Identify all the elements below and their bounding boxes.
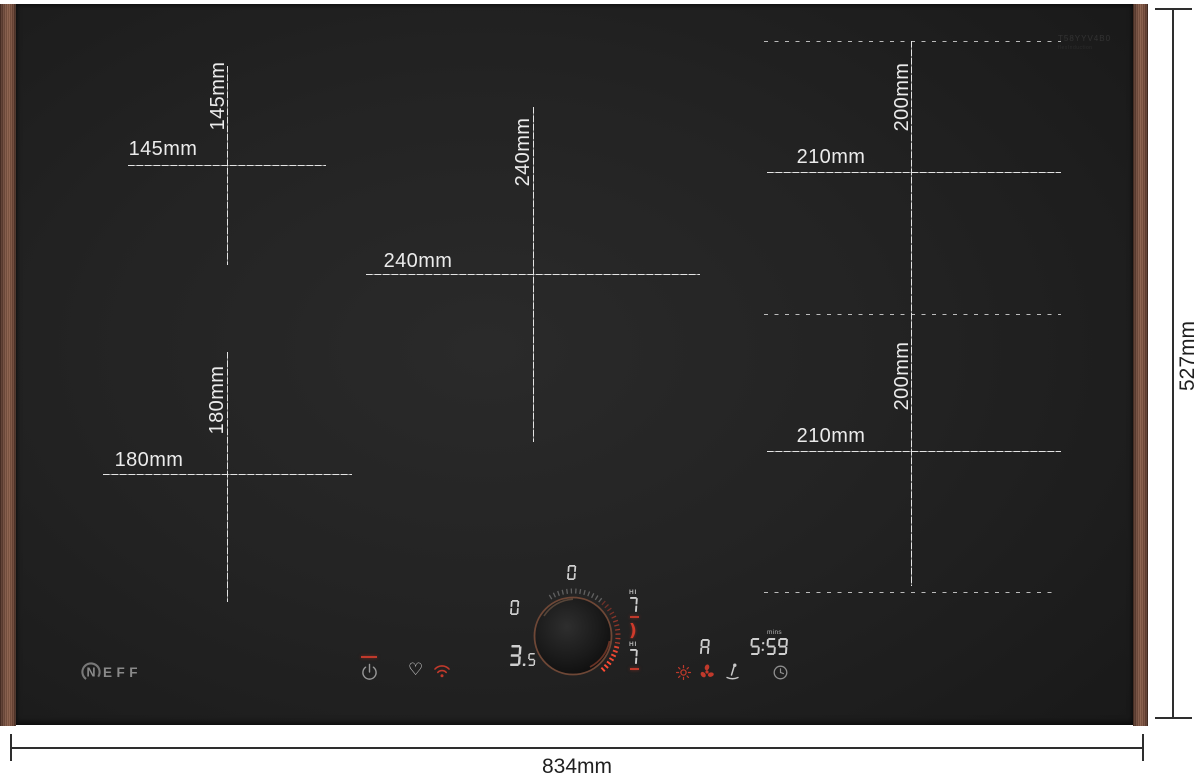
overall-height-bottom-tick — [1155, 717, 1192, 719]
zone-145-horizontal-line — [128, 165, 326, 166]
twist-knob — [518, 581, 628, 691]
zone-180-height-label: 180mm — [206, 355, 228, 445]
power-active-dash — [361, 656, 377, 658]
auto-mode-display — [701, 639, 711, 655]
power-icon — [360, 663, 379, 682]
right-top-level-display — [629, 597, 639, 613]
overall-width-line — [10, 747, 1143, 749]
right-bottom-boost-label: HI — [629, 641, 637, 648]
zone-240-horizontal-line — [366, 274, 700, 275]
flex-zone-bottom-width-label: 210mm — [786, 425, 876, 447]
overall-height-label: 527mm — [1176, 306, 1200, 406]
overall-width-label: 834mm — [527, 755, 627, 777]
cleaning-wand-icon — [724, 663, 741, 681]
zone-145-width-label: 145mm — [118, 138, 208, 160]
zone-180-width-label: 180mm — [104, 449, 194, 471]
right-bottom-level-display — [629, 649, 639, 665]
heart-icon: ♡ — [408, 662, 423, 679]
clock-icon — [773, 665, 788, 680]
left-copper-trim — [0, 4, 16, 726]
model-etching: T58YYV4B0 flexInduction — [1058, 35, 1128, 52]
overall-height-top-tick — [1155, 8, 1192, 10]
right-bottom-level-dash — [630, 668, 639, 670]
flex-zone-top-width-label: 210mm — [786, 146, 876, 168]
zone-240-width-label: 240mm — [373, 250, 463, 272]
fan-icon — [699, 664, 715, 680]
flex-zone-top-dashed-line — [764, 41, 1061, 42]
model-etching-line1: T58YYV4B0 — [1058, 34, 1111, 43]
neff-logo: N EFF — [80, 660, 138, 684]
right-top-level-dash — [630, 616, 639, 618]
flex-zone-top-horizontal-line — [767, 172, 1061, 173]
flex-zone-middle-dashed-line — [764, 314, 1061, 315]
zone-145-height-label: 145mm — [207, 51, 229, 141]
knob-body — [535, 598, 612, 675]
right-top-boost-label: HI — [629, 589, 637, 596]
product-dimension-diagram: T58YYV4B0 flexInduction 145mm 145mm 240m… — [0, 0, 1200, 777]
zone-240-height-label: 240mm — [512, 107, 534, 197]
neff-logo-eff: EFF — [103, 665, 138, 680]
overall-width-right-tick — [1142, 734, 1144, 761]
right-copper-trim — [1133, 4, 1148, 726]
timer-value-display — [751, 638, 789, 655]
flex-zone-bottom-height-label: 200mm — [891, 331, 913, 421]
flex-zone-bottom-dashed-line — [764, 592, 1057, 593]
zone-180-horizontal-line — [103, 474, 352, 475]
knob-top-zone-level-display — [568, 565, 577, 580]
overall-width-left-tick — [10, 734, 12, 761]
neff-logo-n: N — [86, 665, 95, 679]
model-etching-line2: flexInduction — [1058, 44, 1128, 52]
timer-unit-label: mins — [767, 629, 782, 636]
pan-detection-symbol: ) — [629, 621, 637, 641]
overall-height-line — [1172, 8, 1174, 718]
flex-zone-bottom-horizontal-line — [767, 451, 1061, 452]
wifi-icon — [432, 662, 452, 679]
warming-sun-icon — [676, 665, 691, 680]
flex-zone-top-height-label: 200mm — [891, 52, 913, 142]
